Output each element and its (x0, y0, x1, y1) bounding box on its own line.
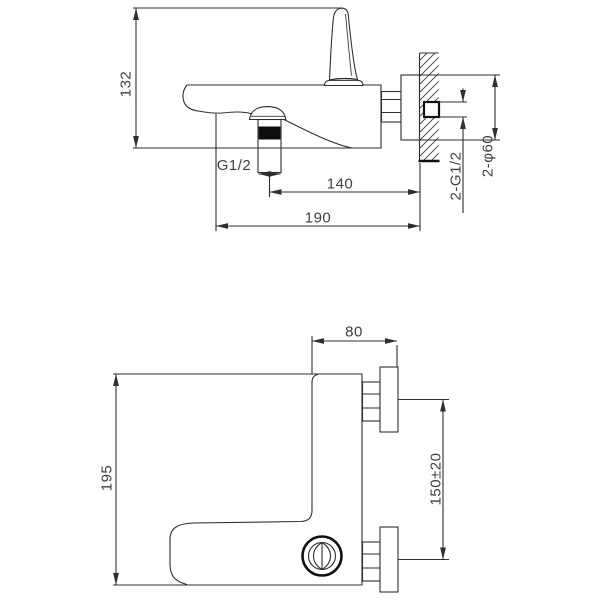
dim-overall-height: 132 (117, 8, 136, 148)
technical-drawing-page: 132 G1/2 140 190 2-G1/2 (0, 0, 600, 600)
dim-inlet-spacing-label: 150±20 (427, 453, 444, 506)
hex-nut (382, 92, 402, 123)
dim-outlet-thread-label: G1/2 (217, 157, 252, 174)
dim-wall-to-body: 80 (312, 324, 397, 375)
dim-inlet-thread: 2-G1/2 (439, 89, 467, 214)
dim-overall-height-label: 132 (117, 71, 134, 98)
hex-nut-upper (363, 382, 381, 421)
escutcheon-upper (380, 367, 398, 432)
dim-inlet-spacing: 150±20 (398, 400, 449, 560)
dim-overall-depth-label: 190 (305, 210, 332, 227)
dim-escutcheon-diameter-label: 2-φ60 (479, 135, 496, 177)
technical-drawing-canvas: 132 G1/2 140 190 2-G1/2 (0, 0, 600, 600)
dim-wall-to-body-label: 80 (345, 324, 363, 341)
dim-body-width: 195 (98, 374, 116, 585)
inlet-port-square (424, 102, 439, 117)
handle-base (325, 80, 364, 85)
dim-body-width-label: 195 (98, 465, 115, 492)
hex-nut-lower (363, 542, 381, 581)
escutcheon-plate (401, 75, 420, 140)
dim-outlet-to-wall: 140 (270, 163, 421, 231)
escutcheon-lower (380, 527, 398, 592)
handle-lever (330, 8, 358, 80)
dim-inlet-thread-label: 2-G1/2 (447, 152, 464, 201)
side-view: 132 G1/2 140 190 2-G1/2 (117, 8, 500, 231)
diverter-knob (303, 537, 342, 576)
outlet-thread-band (259, 127, 281, 140)
body-step-contour (170, 375, 318, 585)
dim-outlet-to-wall-label: 140 (327, 176, 354, 193)
plan-view: 80 195 150±20 (98, 324, 449, 593)
